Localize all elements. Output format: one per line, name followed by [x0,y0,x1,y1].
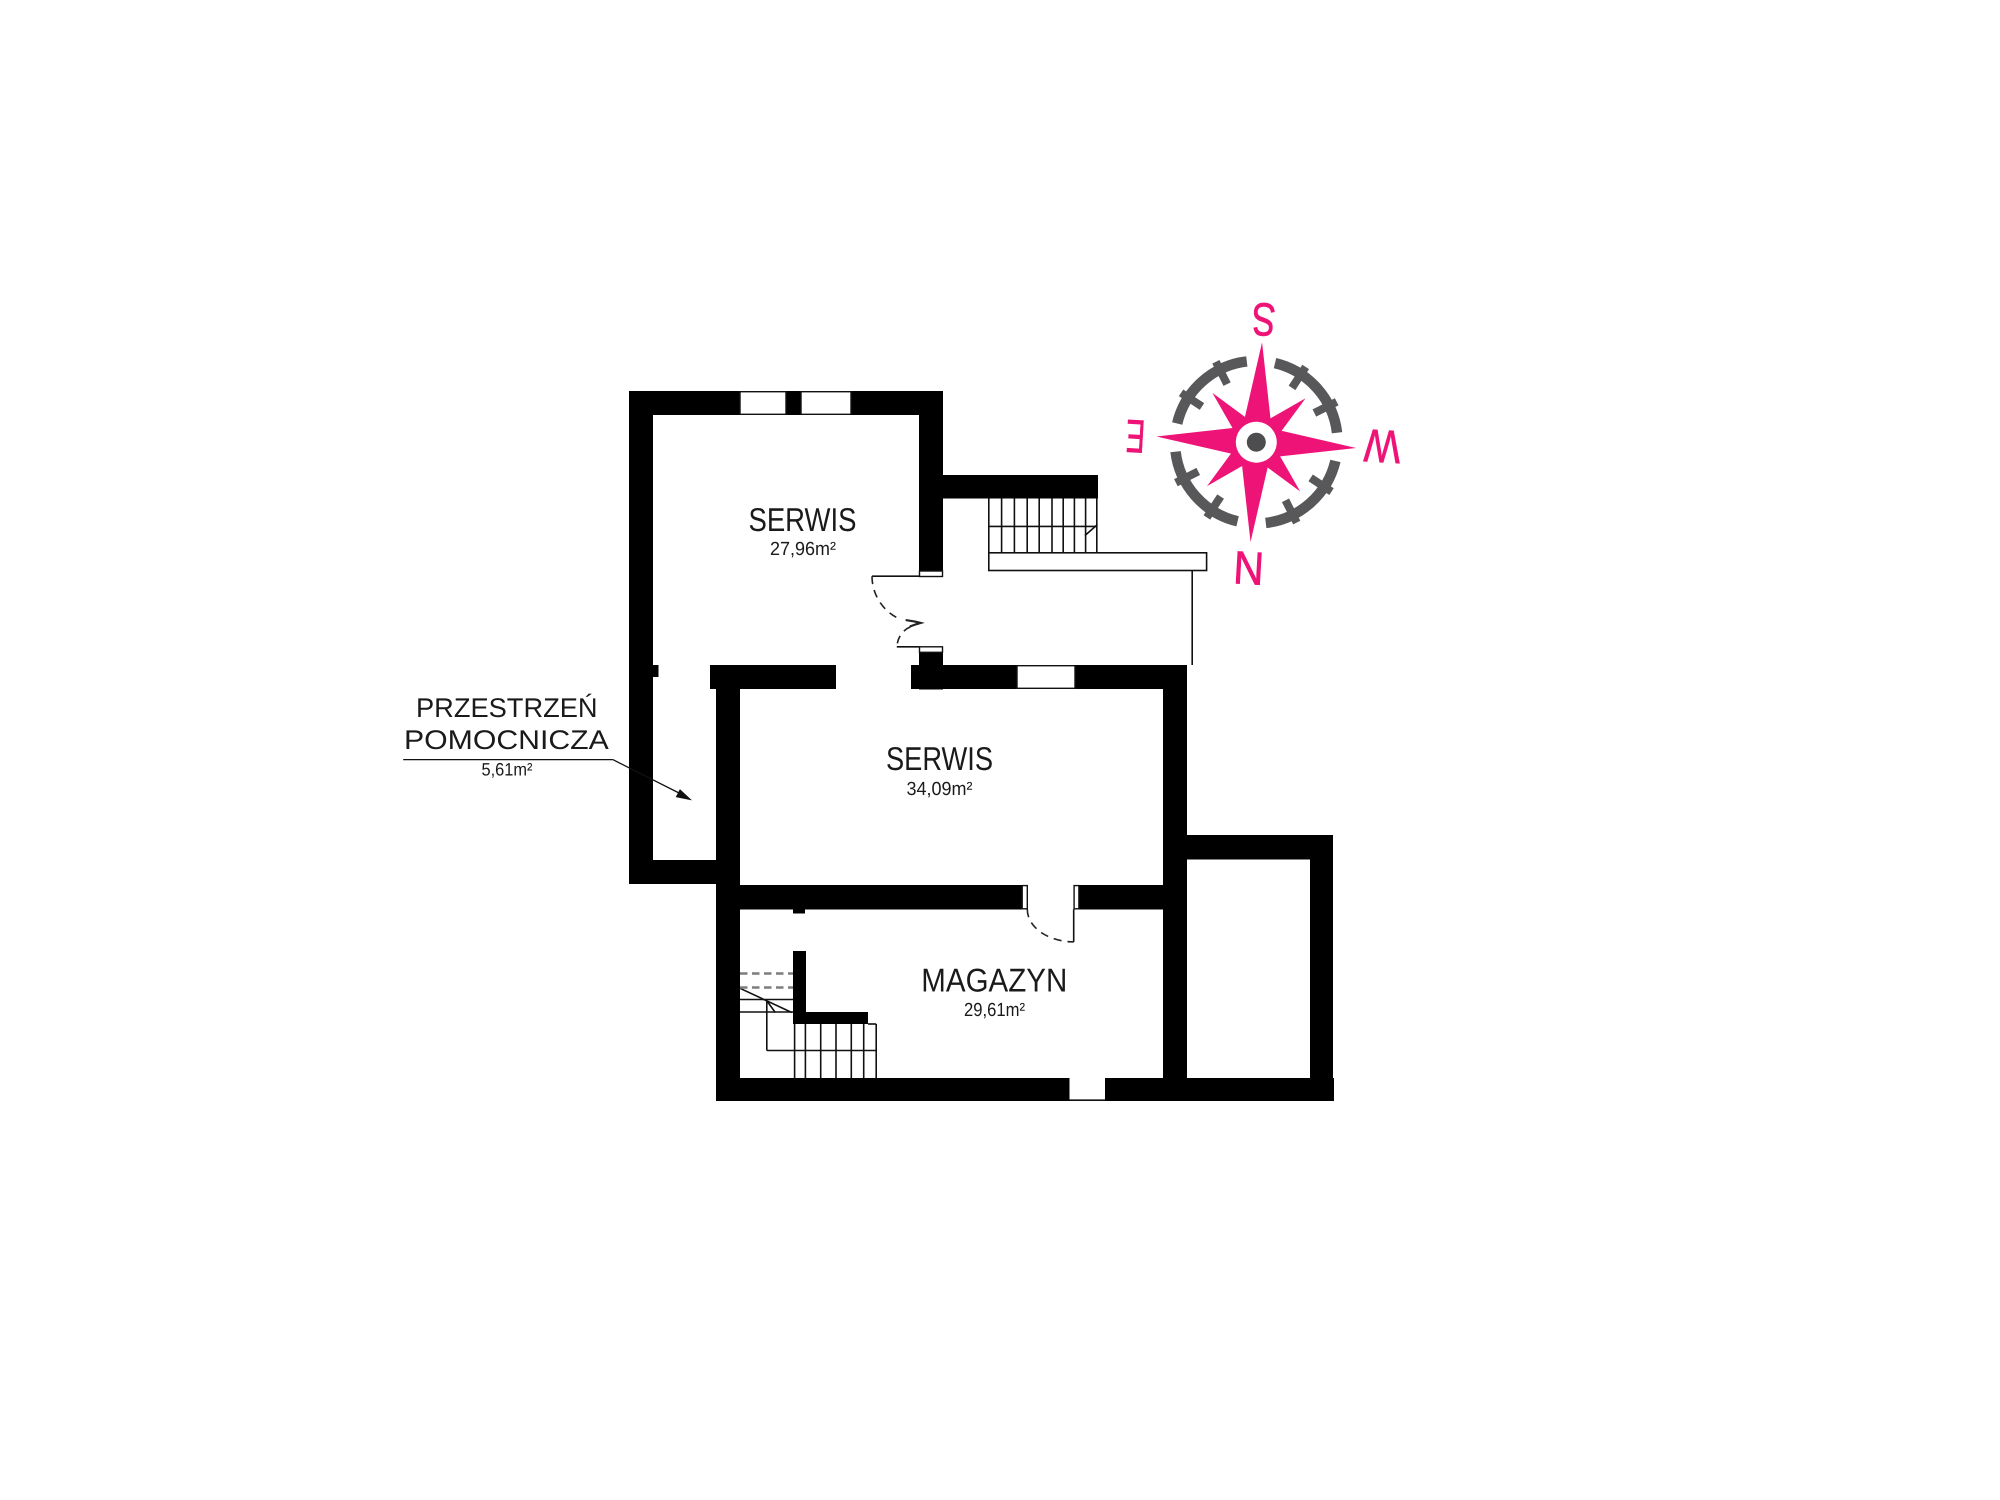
svg-text:27,96m²: 27,96m² [770,539,836,560]
svg-text:SERWIS: SERWIS [886,740,993,777]
svg-text:N: N [1232,541,1265,595]
svg-text:S: S [1251,293,1277,346]
svg-text:PRZESTRZEŃ: PRZESTRZEŃ [416,693,598,723]
svg-text:29,61m²: 29,61m² [964,1000,1025,1021]
svg-text:MAGAZYN: MAGAZYN [921,962,1067,999]
svg-text:5,61m²: 5,61m² [482,759,533,779]
svg-text:W: W [1363,419,1403,473]
svg-text:POMOCNICZA: POMOCNICZA [404,725,609,755]
svg-text:SERWIS: SERWIS [749,501,857,538]
svg-text:34,09m²: 34,09m² [907,779,973,800]
svg-text:E: E [1125,410,1147,463]
